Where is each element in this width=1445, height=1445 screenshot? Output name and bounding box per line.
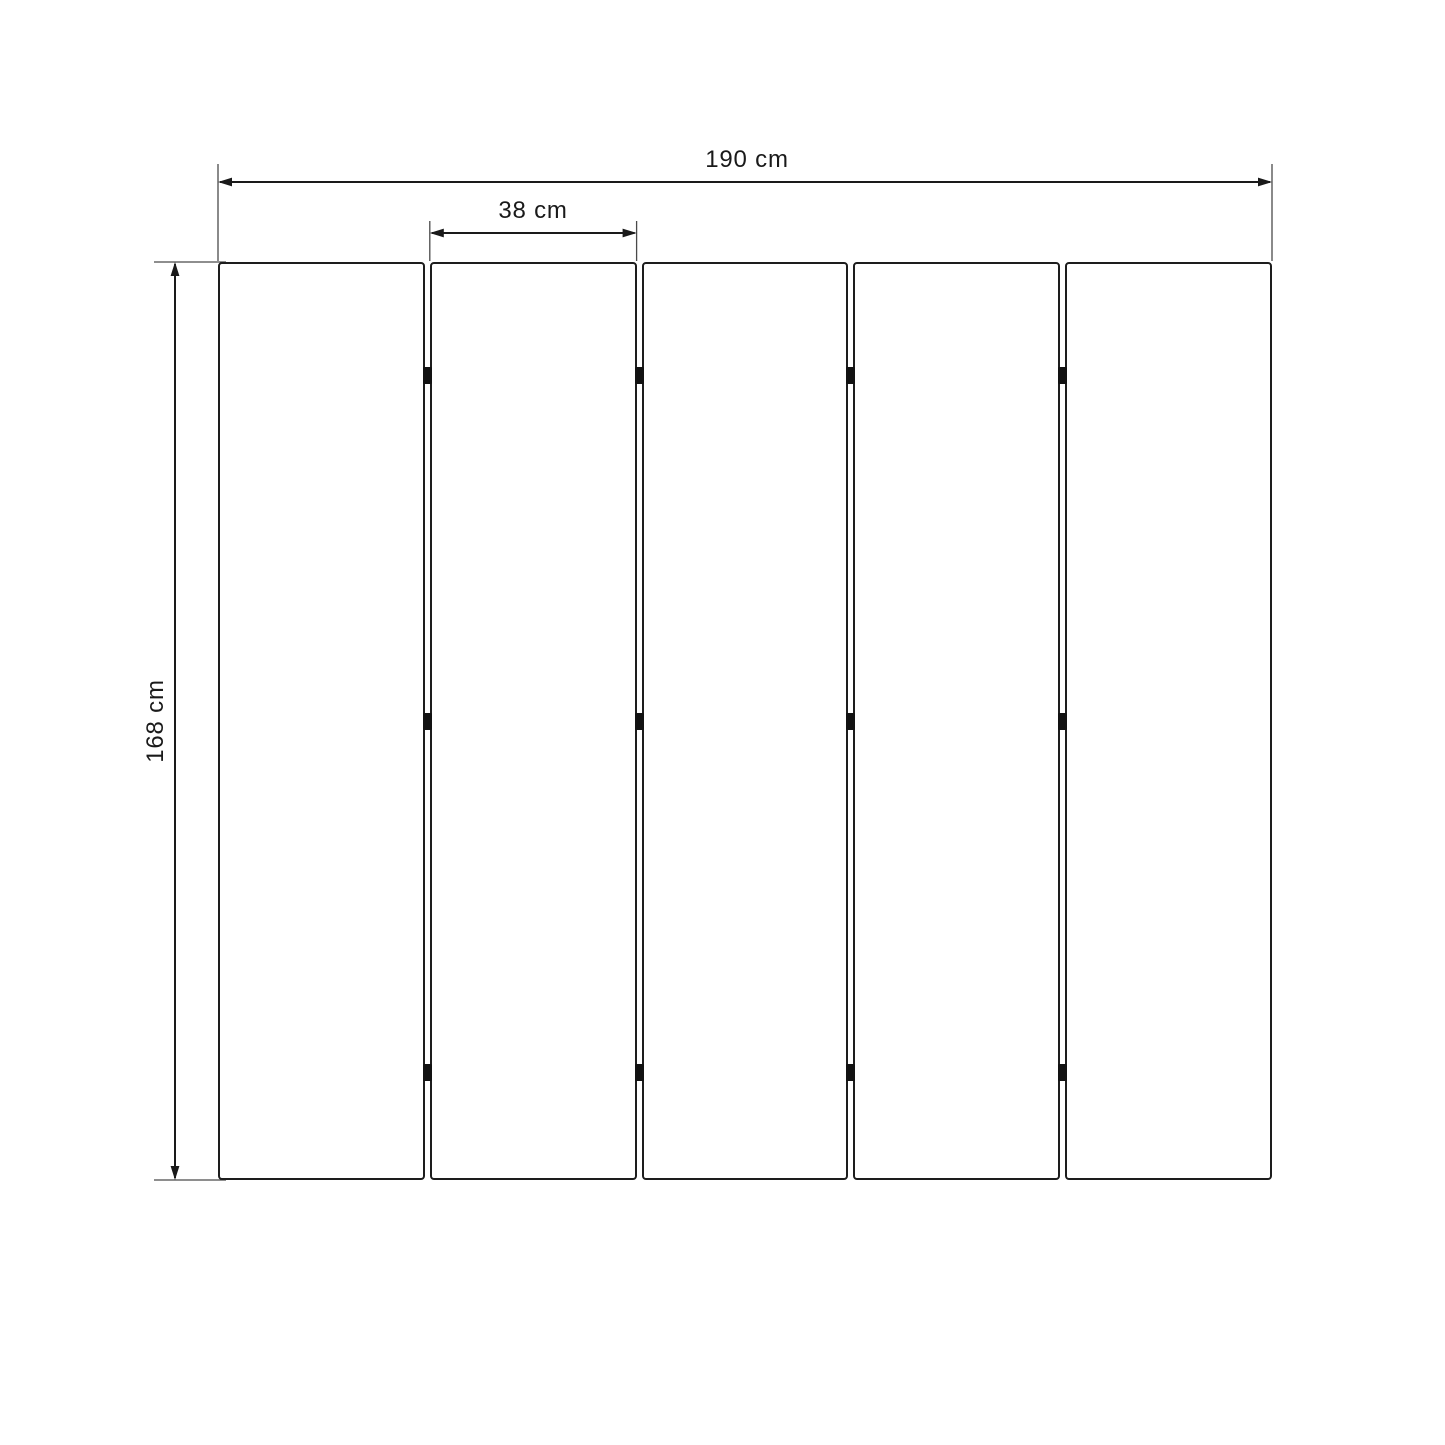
hinge — [423, 1064, 432, 1081]
dimension-diagram: 190 cm 38 cm 168 cm — [0, 0, 1445, 1445]
arrow-down-icon — [171, 1166, 180, 1180]
hinge — [846, 367, 855, 384]
panel-width-dimension — [430, 221, 637, 261]
panel-4 — [853, 262, 1060, 1180]
panel-1 — [218, 262, 425, 1180]
hinge — [846, 1064, 855, 1081]
hinge — [423, 367, 432, 384]
panel-2 — [430, 262, 637, 1180]
hinge — [635, 367, 644, 384]
panel-5 — [1065, 262, 1272, 1180]
hinge — [635, 1064, 644, 1081]
arrow-right-icon — [1258, 178, 1272, 187]
hinge — [1058, 1064, 1067, 1081]
panel-width-label: 38 cm — [498, 197, 567, 225]
panel-group — [218, 262, 1272, 1180]
hinge — [635, 713, 644, 730]
height-label: 168 cm — [142, 679, 170, 763]
total-width-label: 190 cm — [705, 146, 789, 174]
arrow-left-icon — [430, 229, 444, 238]
hinge — [423, 713, 432, 730]
arrow-left-icon — [218, 178, 232, 187]
arrow-right-icon — [623, 229, 637, 238]
hinge — [1058, 367, 1067, 384]
total-width-dimension — [218, 164, 1272, 261]
hinge — [1058, 713, 1067, 730]
arrow-up-icon — [171, 262, 180, 276]
hinge — [846, 713, 855, 730]
panel-3 — [642, 262, 849, 1180]
